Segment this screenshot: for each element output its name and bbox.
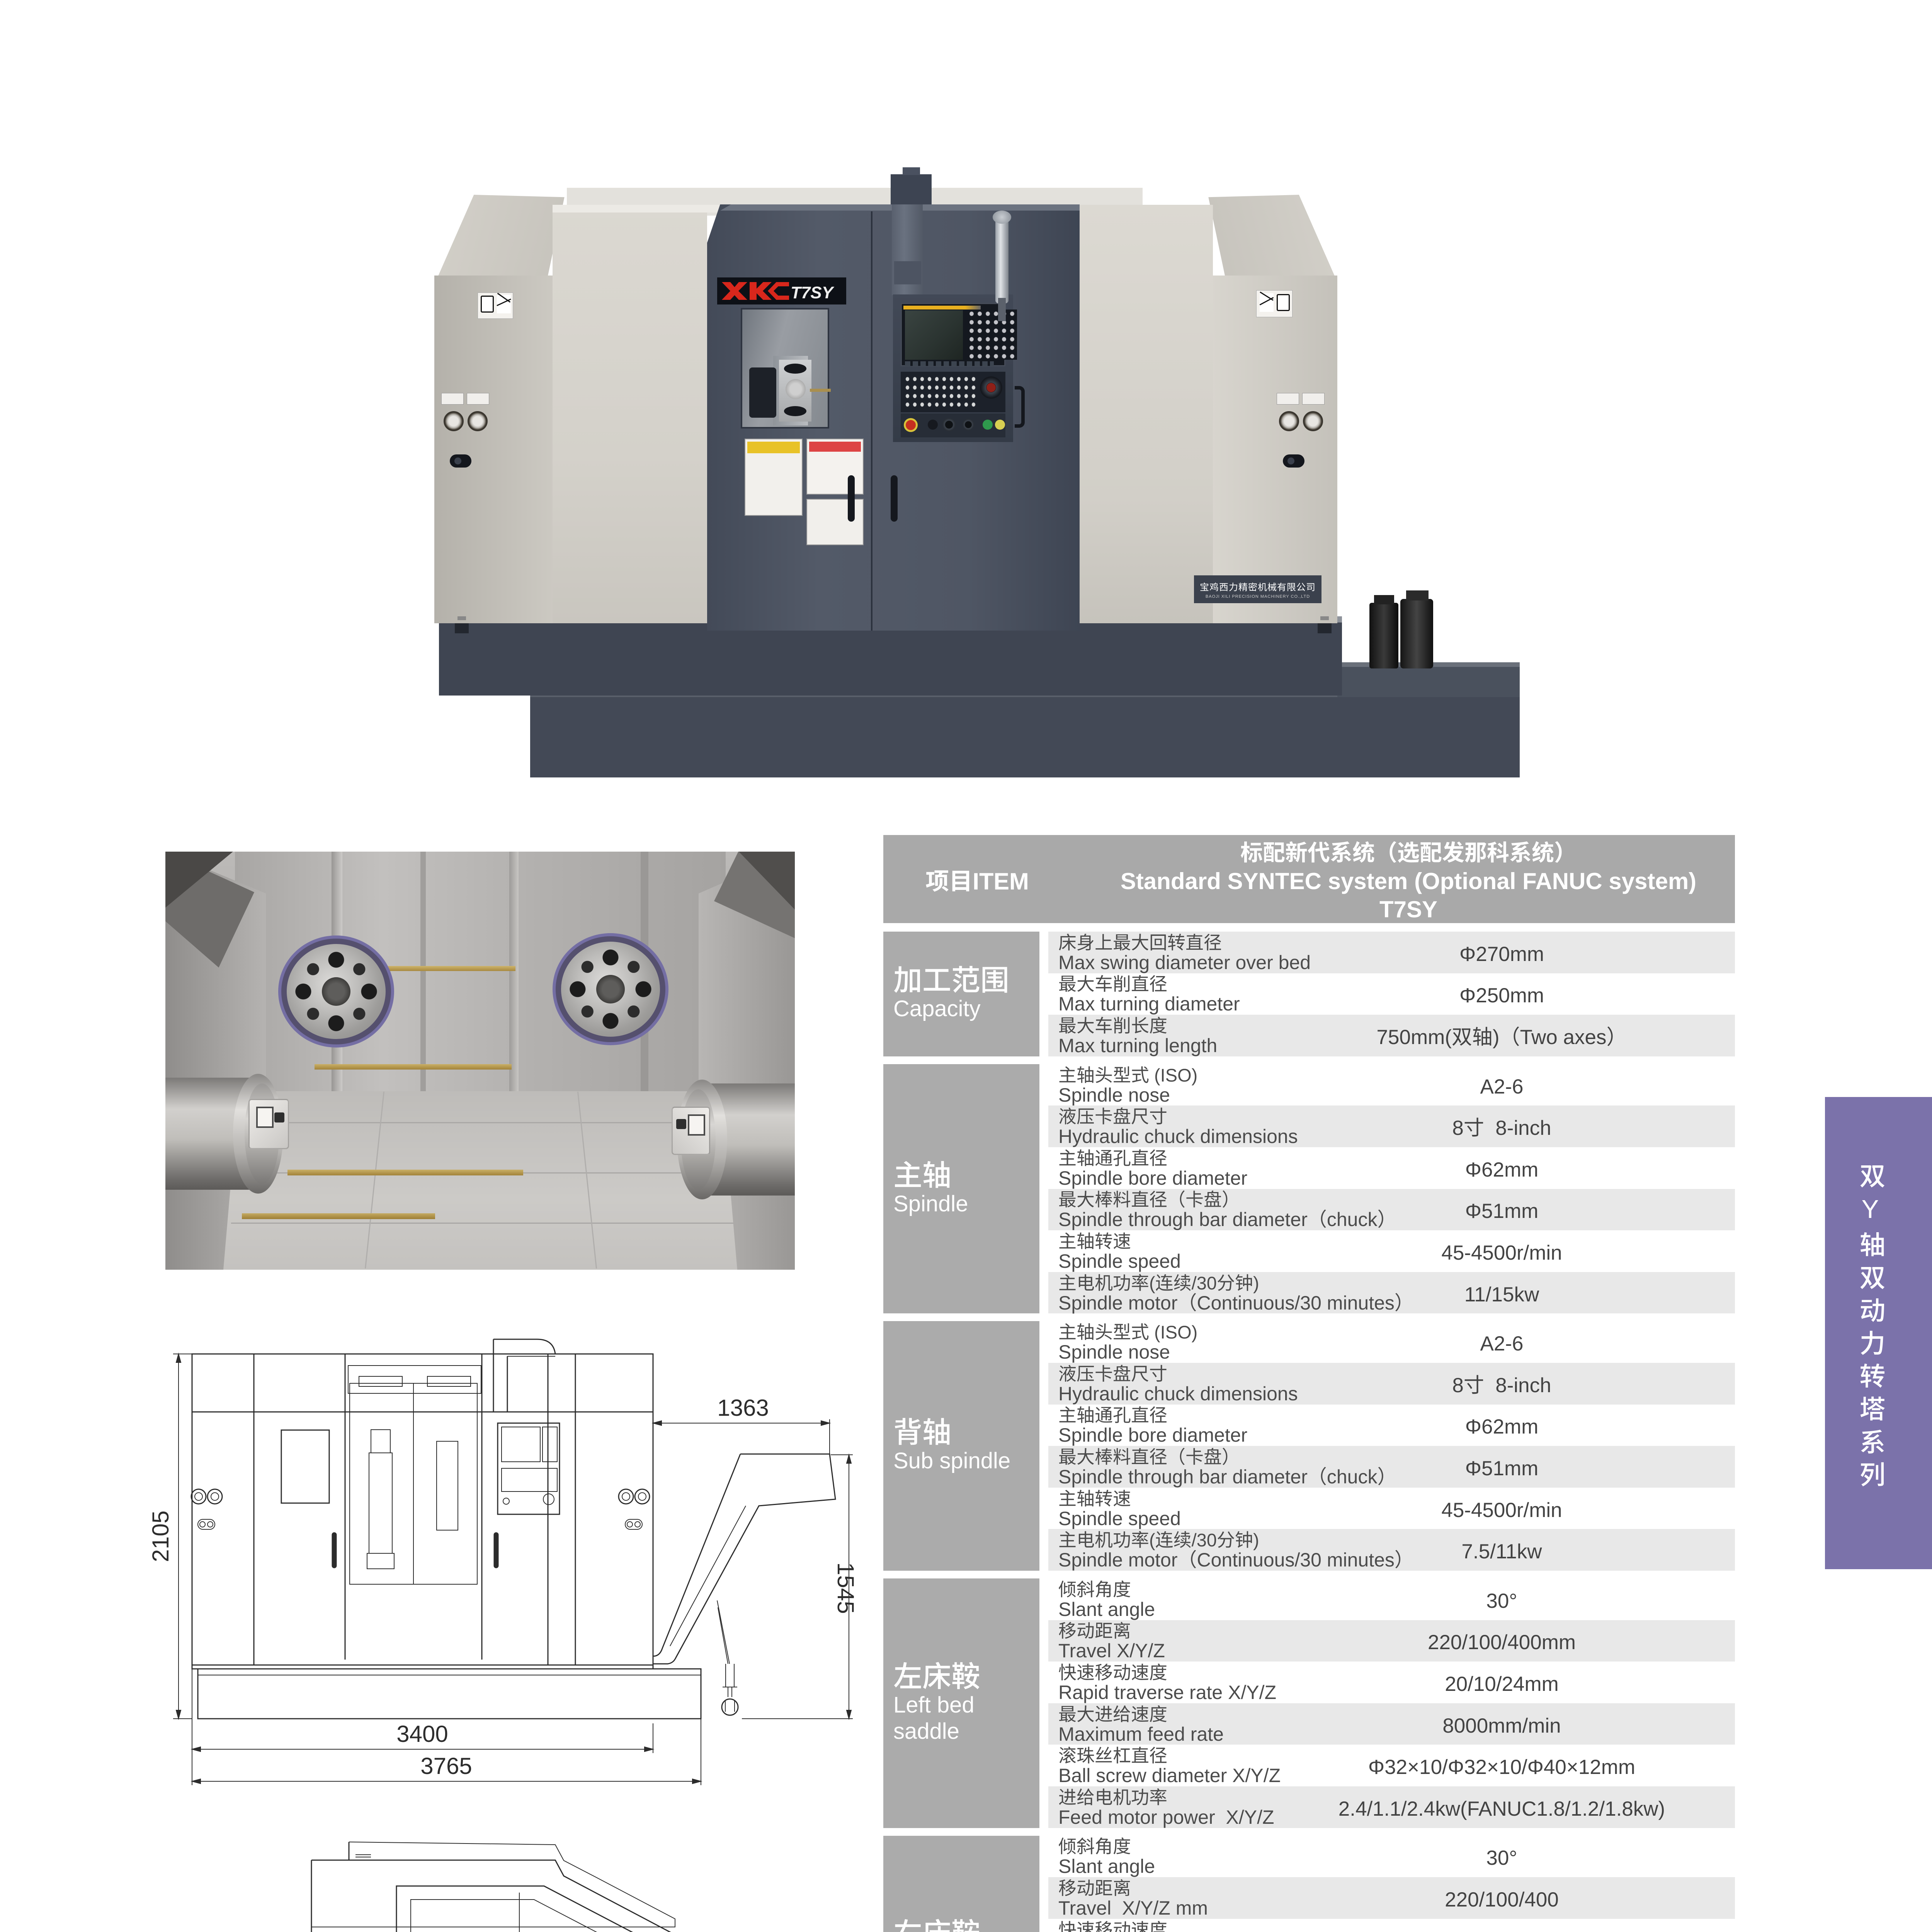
svg-text:1545: 1545 <box>833 1562 859 1614</box>
svg-text:3400: 3400 <box>396 1721 448 1747</box>
svg-text:T7SY: T7SY <box>791 283 835 302</box>
svg-text:2105: 2105 <box>148 1510 173 1562</box>
svg-text:3765: 3765 <box>420 1753 472 1779</box>
svg-text:1363: 1363 <box>717 1395 769 1421</box>
